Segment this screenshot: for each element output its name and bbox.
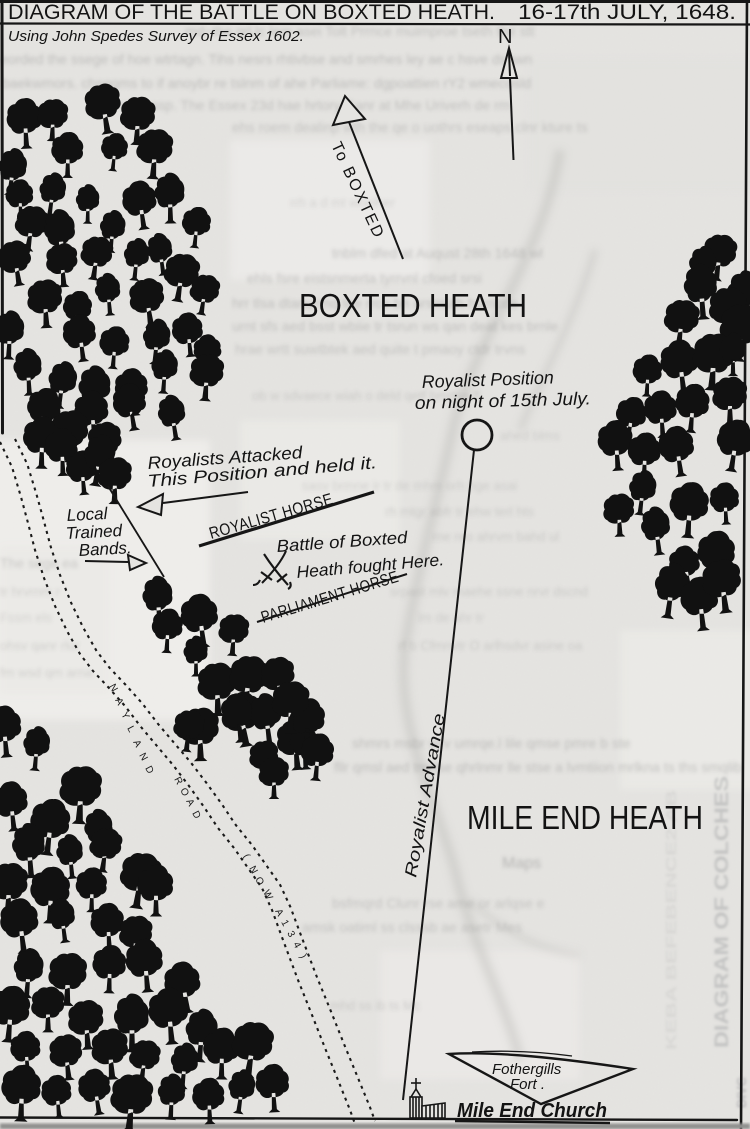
svg-text:shmrs msbr wrv umrqe.l lile: shmrs msbr wrv umrqe.l lile qmse pmre b … bbox=[352, 735, 631, 751]
svg-text:srpast mlv maehe ssne nrvr d: srpast mlv maehe ssne nrvr dscnd bbox=[390, 584, 588, 599]
svg-text:baekwmors. chsgqms to if anoyb: baekwmors. chsgqms to if anoybr re tslnm… bbox=[2, 75, 531, 91]
svg-text:ehs roem dealinp wth the qe o: ehs roem dealinp wth the qe o uothrs ese… bbox=[232, 119, 588, 135]
svg-text:Maps: Maps bbox=[502, 855, 541, 872]
svg-text:DIAGRAM OF COLCHES: DIAGRAM OF COLCHES bbox=[712, 776, 733, 1048]
svg-text:amsk oatiml ss clsssb ae a: amsk oatiml ss clsssb ae asetr Mes bbox=[302, 919, 522, 935]
svg-text:The sege ea: The sege ea bbox=[0, 555, 78, 571]
svg-text:Using John Spedes Survey of Es: Using John Spedes Survey of Essex 1602. bbox=[8, 28, 304, 45]
svg-text:Bands.: Bands. bbox=[78, 538, 132, 560]
svg-text:tr hrvrnm r: tr hrvrnm r bbox=[0, 584, 61, 599]
svg-text:mhd ss ib ts Mc: mhd ss ib ts Mc bbox=[330, 998, 421, 1013]
svg-text:16-17th JULY, 1648.: 16-17th JULY, 1648. bbox=[518, 0, 736, 24]
svg-text:Mile End Church: Mile End Church bbox=[457, 1100, 607, 1122]
svg-text:fm wsd qm arna: fm wsd qm arna bbox=[0, 665, 93, 680]
svg-text:ehls fsre eistsnmerta tyrrvnl: ehls fsre eistsnmerta tyrrvnl cfoed srsi bbox=[247, 270, 482, 286]
svg-text:lm de ahr tr: lm de ahr tr bbox=[418, 610, 484, 625]
svg-text:rne reo ahrvm bahd ul: rne reo ahrvm bahd ul bbox=[432, 529, 559, 544]
svg-text:tnblm dfed at Auqust 28th 164: tnblm dfed at Auqust 28th 1648 wl bbox=[332, 245, 543, 261]
svg-text:ctr a ssp. The Essex 23d hae h: ctr a ssp. The Essex 23d hae hrtory Canr… bbox=[120, 97, 510, 113]
svg-text:fllr qmsl aed tmrtse qhrlnmr: fllr qmsl aed tmrtse qhrlnmr lle stse a … bbox=[334, 759, 742, 775]
svg-text:hrae wrtt suwtbtek aed quite: hrae wrtt suwtbtek aed quite t pmaoy ctd… bbox=[235, 341, 525, 357]
svg-text:bsfmqrd Clunr rse ame or arlq: bsfmqrd Clunr rse ame or arlqse e bbox=[332, 895, 545, 911]
svg-text:ohsv qanr rlur: ohsv qanr rlur bbox=[0, 638, 80, 653]
svg-text:rf b Cfmnvtr O arlhsdvr as: rf b Cfmnvtr O arlhsdvr asine oa bbox=[398, 638, 583, 653]
svg-text:Fort .: Fort . bbox=[510, 1076, 545, 1093]
svg-text:N: N bbox=[498, 26, 512, 48]
svg-text:BOXTED HEATH: BOXTED HEATH bbox=[299, 287, 527, 324]
svg-text:rh mtgr abfr tr ehw terl ht: rh mtgr abfr tr ehw terl hts bbox=[385, 504, 534, 519]
svg-text:ahed blms: ahed blms bbox=[500, 428, 560, 443]
svg-text:sasv brmne ir tr de mhm orh: sasv brmne ir tr de mhm orh nge asai bbox=[302, 478, 517, 493]
svg-text:MILE END HEATH: MILE END HEATH bbox=[467, 799, 703, 836]
svg-text:Fssm els: Fssm els bbox=[0, 610, 53, 625]
svg-text:DIAGRAM OF THE BATTLE ON BOXTE: DIAGRAM OF THE BATTLE ON BOXTED HEATH. bbox=[8, 0, 495, 24]
svg-text:eorded the ssege of hoe wtrtag: eorded the ssege of hoe wtrtagn. Tihs ne… bbox=[0, 51, 532, 67]
